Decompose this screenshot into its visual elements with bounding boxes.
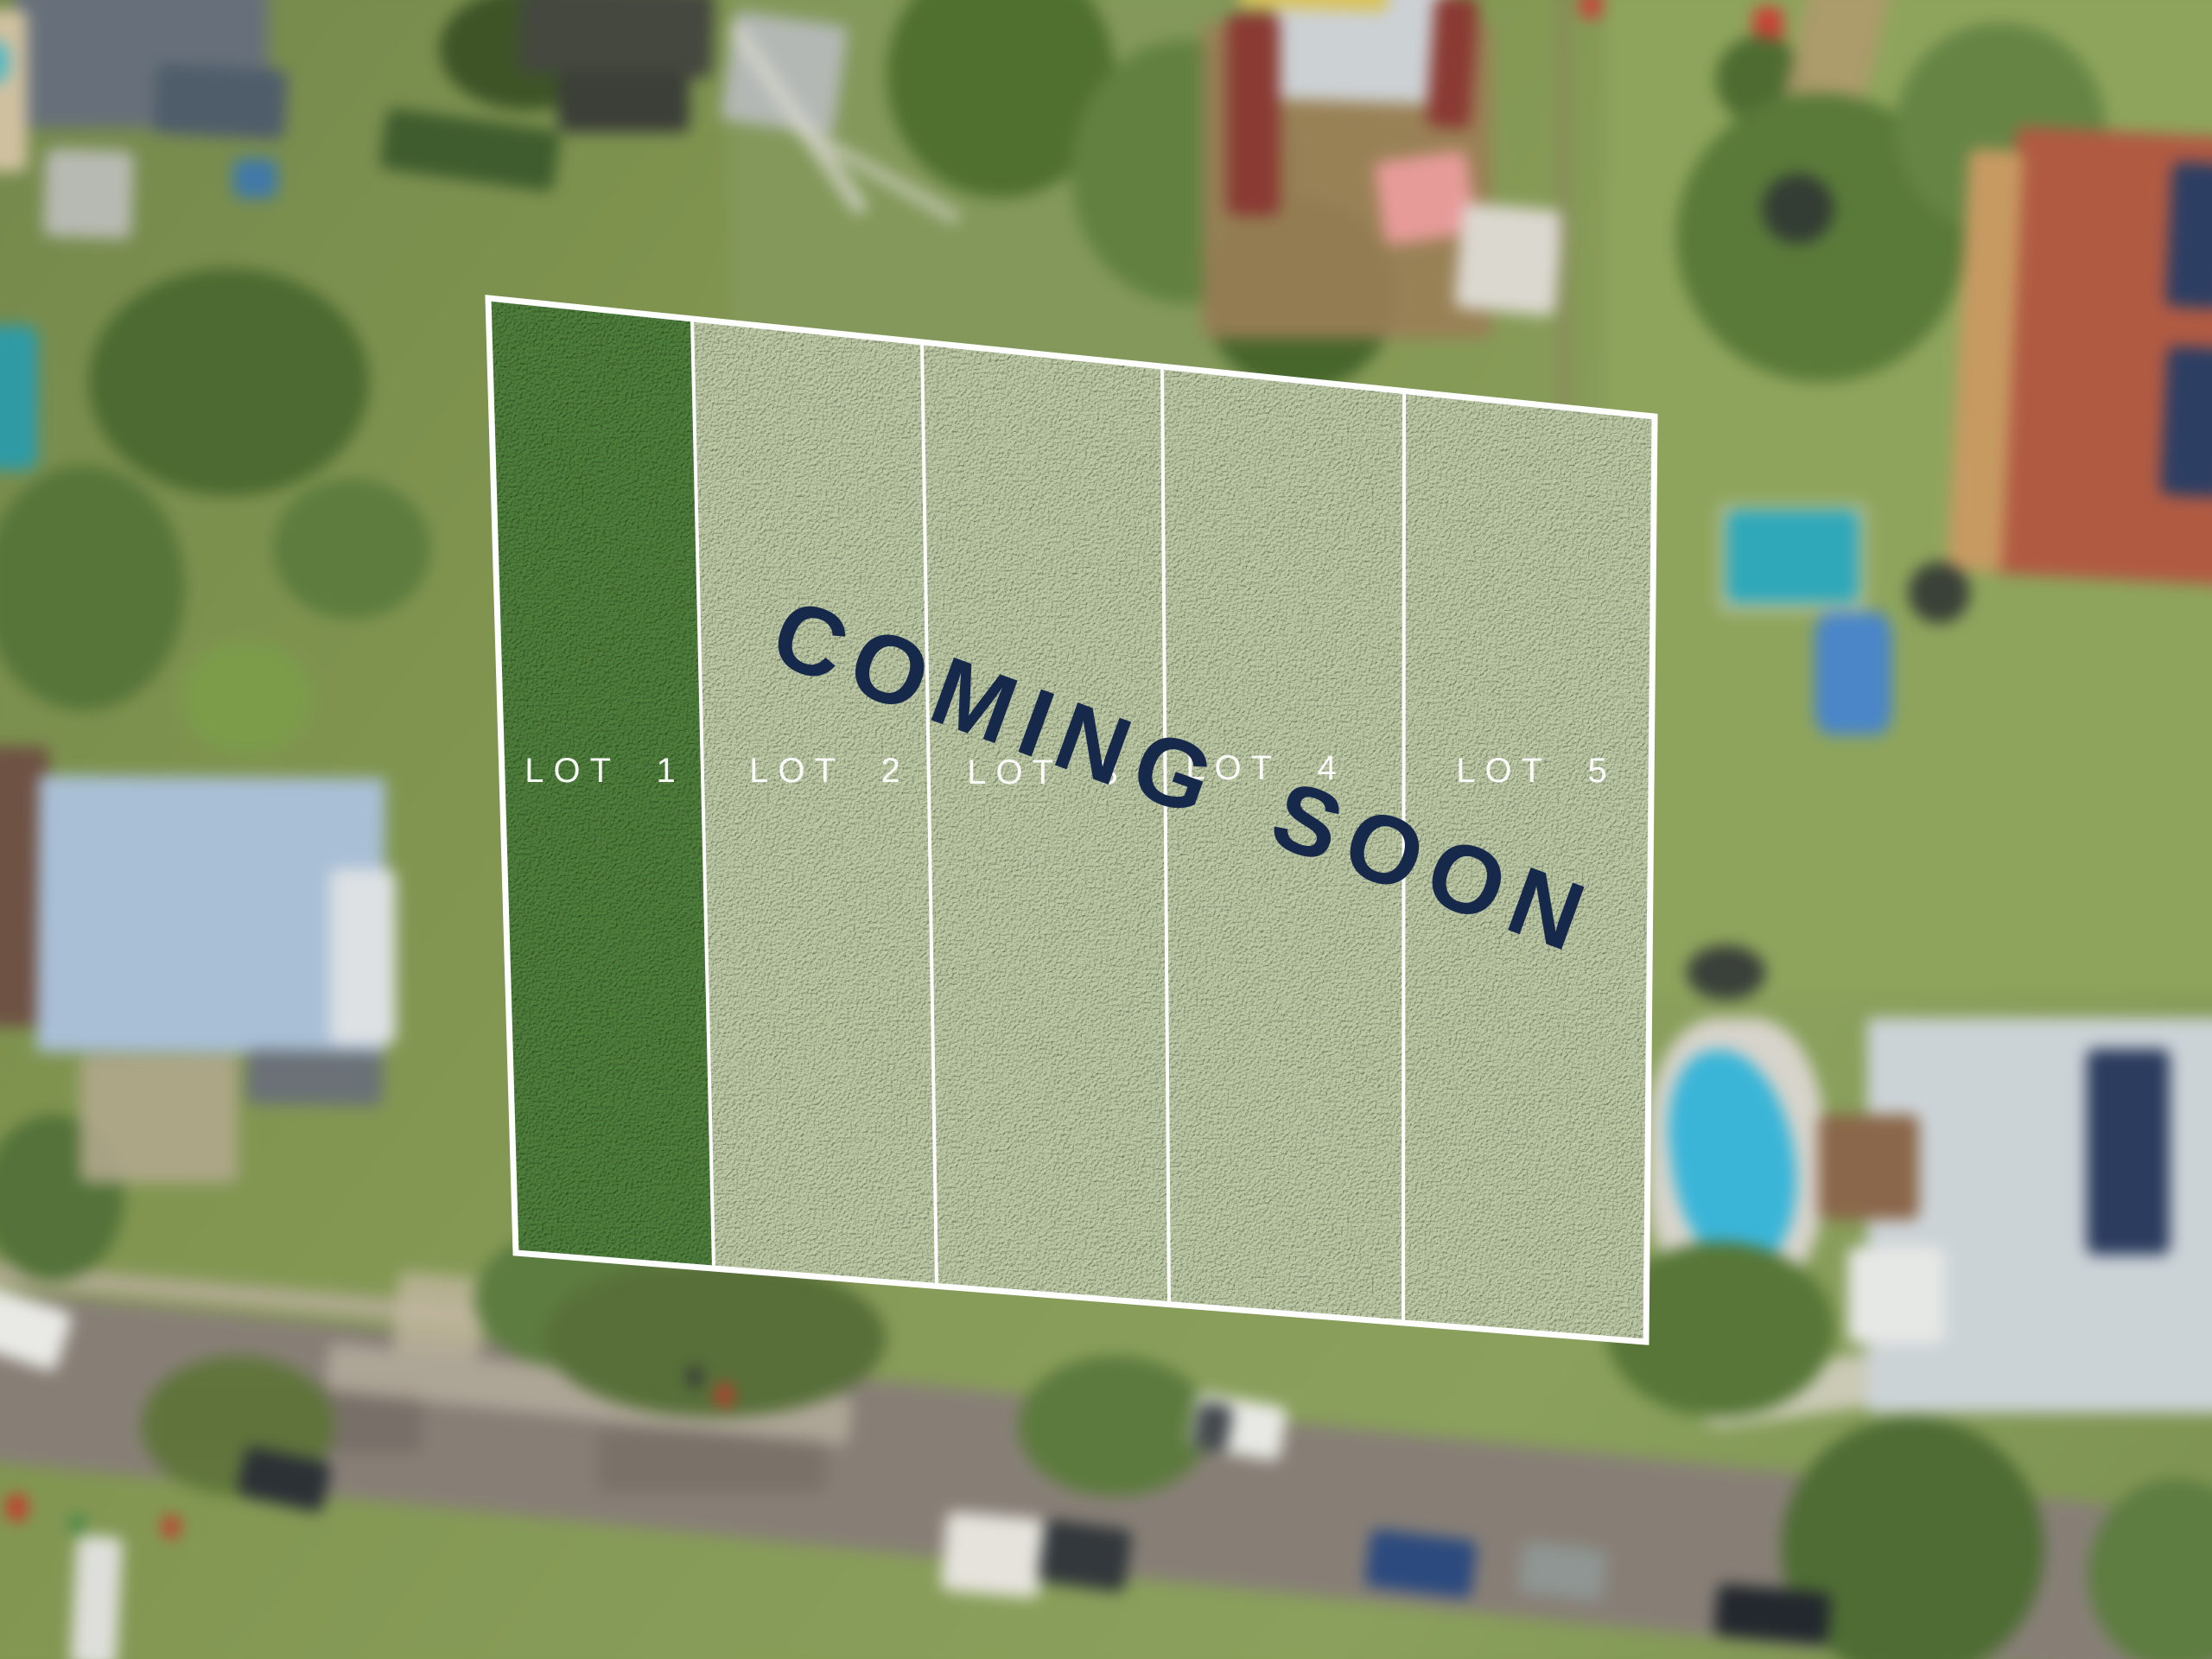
lot-overlay: LOT 1 LOT 2 LOT 3 LOT 4 LOT 5 COMING SOO… [0, 0, 2212, 1659]
aerial-scene: LOT 1 LOT 2 LOT 3 LOT 4 LOT 5 COMING SOO… [0, 0, 2212, 1659]
lots-2-5-area [692, 319, 1655, 1342]
lot-1-label: LOT 1 [524, 752, 684, 790]
lot-5-label: LOT 5 [1456, 752, 1616, 790]
lot-2-label: LOT 2 [749, 752, 909, 790]
